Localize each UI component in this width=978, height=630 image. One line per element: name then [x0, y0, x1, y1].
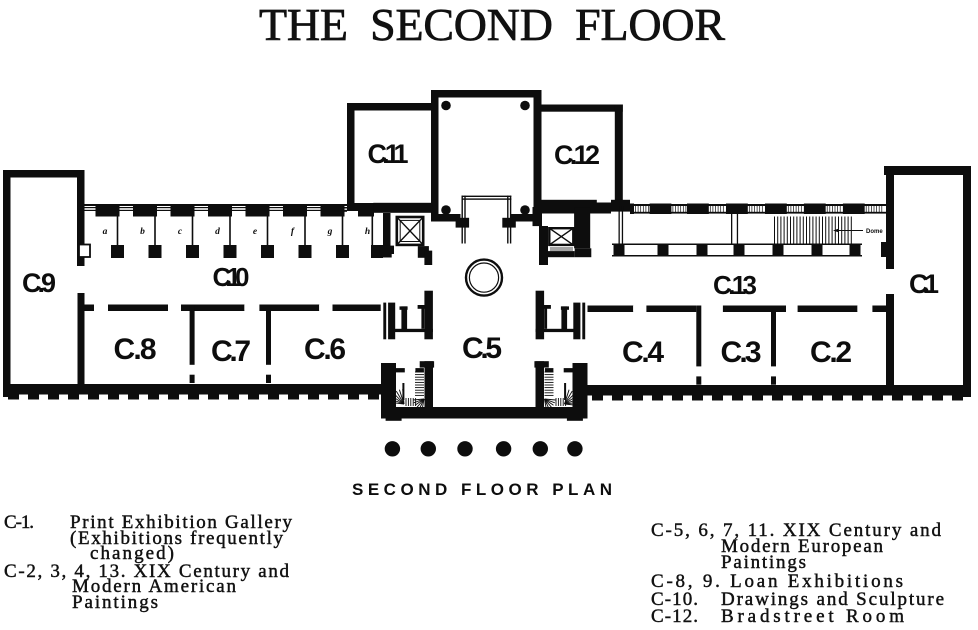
svg-text:b: b — [140, 227, 145, 237]
svg-text:C.7: C.7 — [211, 335, 251, 368]
svg-text:C.12: C.12 — [554, 140, 600, 170]
svg-text:C-12.: C-12. — [651, 606, 698, 627]
svg-text:C-2, 3, 4, 13. XIX Century and: C-2, 3, 4, 13. XIX Century and — [4, 561, 289, 582]
svg-text:THE SECOND FLOOR: THE SECOND FLOOR — [259, 0, 729, 50]
svg-text:SECOND FLOOR PLAN: SECOND FLOOR PLAN — [352, 480, 616, 499]
svg-text:C.8: C.8 — [114, 333, 157, 366]
svg-text:C.5: C.5 — [462, 332, 502, 365]
svg-text:h: h — [365, 227, 370, 237]
svg-text:C.10: C.10 — [213, 262, 250, 292]
svg-text:d: d — [215, 227, 220, 237]
svg-text:C.13: C.13 — [713, 270, 757, 300]
svg-text:g: g — [327, 227, 333, 237]
svg-text:Paintings: Paintings — [721, 552, 806, 573]
svg-text:C.6: C.6 — [304, 333, 346, 366]
svg-text:C.1: C.1 — [909, 269, 939, 299]
svg-text:Paintings: Paintings — [72, 592, 158, 613]
svg-text:C.4: C.4 — [622, 336, 664, 369]
svg-text:C-1.: C-1. — [4, 512, 34, 533]
svg-text:C.2: C.2 — [810, 336, 852, 369]
svg-text:Dome: Dome — [866, 229, 883, 235]
svg-text:C.3: C.3 — [721, 336, 762, 369]
svg-text:C.11: C.11 — [368, 139, 409, 169]
svg-text:a: a — [103, 227, 108, 237]
svg-text:C.9: C.9 — [22, 268, 56, 298]
